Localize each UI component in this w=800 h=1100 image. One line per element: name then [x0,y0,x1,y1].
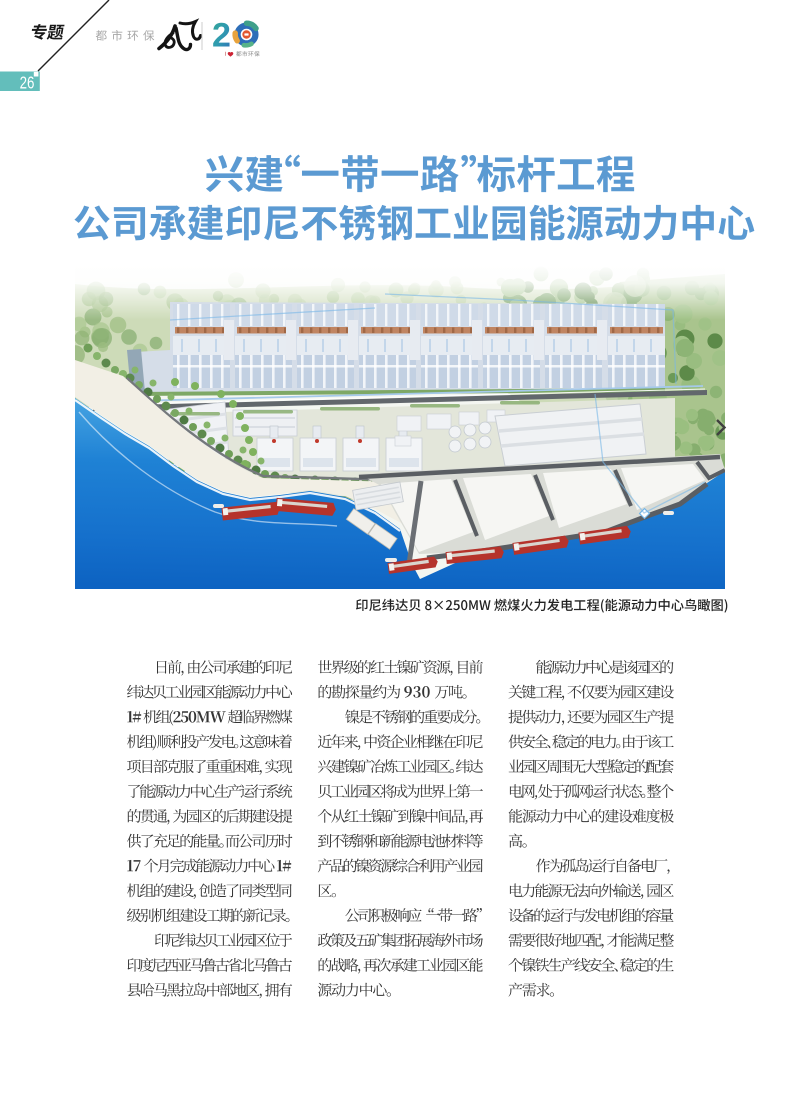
svg-text:2: 2 [212,17,231,55]
svg-text:26: 26 [20,74,35,93]
